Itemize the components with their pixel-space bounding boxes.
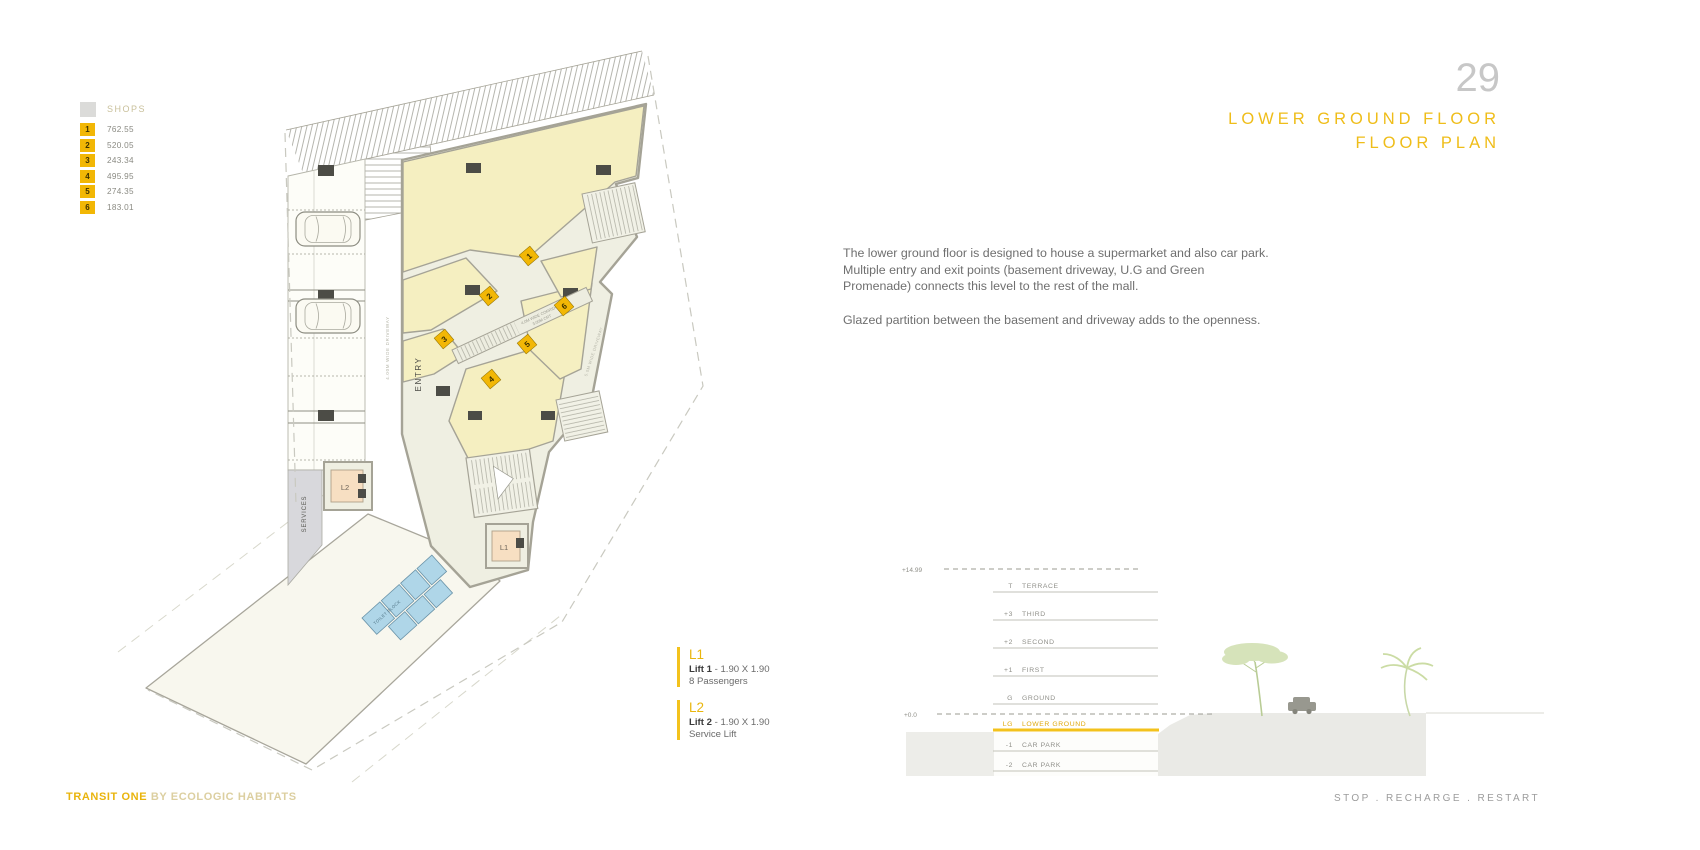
floor-code: +2: [1004, 639, 1013, 646]
floor-name-lower-ground: LOWER GROUND: [1022, 721, 1086, 728]
lift-1-name: Lift 1: [689, 664, 712, 675]
shop-area-value: 183.01: [107, 203, 134, 212]
underground-rows-bg: [994, 732, 1158, 776]
presentation-slide: SERVICES 4.0M WIDE CORRIDOR: [0, 0, 1700, 850]
legend-item: 1 762.55: [80, 123, 146, 136]
parked-car: [296, 299, 360, 333]
shop-number-badge: 1: [80, 123, 95, 136]
description-para1: The lower ground floor is designed to ho…: [843, 245, 1275, 295]
entry-label: ENTRY: [414, 357, 423, 392]
floor-code: G: [1007, 695, 1013, 702]
brand-byline: BY ECOLOGIC HABITATS: [151, 791, 297, 803]
shop-area-value: 243.34: [107, 156, 134, 165]
column: [318, 165, 334, 176]
legend-item: 6 183.01: [80, 201, 146, 214]
lift-legend: L1 Lift 1 - 1.90 X 1.90 8 Passengers L2 …: [677, 647, 770, 740]
lift-2-size: - 1.90 X 1.90: [715, 717, 770, 728]
lift-2-id: L2: [689, 700, 770, 715]
underground-mass-left: [906, 732, 994, 776]
title-block: 29 LOWER GROUND FLOOR FLOOR PLAN: [1228, 58, 1500, 156]
legend-item: 5 274.35: [80, 185, 146, 198]
shop-number-badge: 6: [80, 201, 95, 214]
floor-name: FIRST: [1022, 667, 1045, 674]
shop-number-badge: 3: [80, 154, 95, 167]
lift-2-box: L2: [324, 462, 372, 510]
lift-2-info: L2 Lift 2 - 1.90 X 1.90 Service Lift: [677, 700, 770, 740]
floor-code: T: [1008, 583, 1013, 590]
parked-car: [296, 212, 360, 246]
stair-core: [466, 449, 538, 517]
floor-name: GROUND: [1022, 695, 1056, 702]
shop-number-badge: 5: [80, 185, 95, 198]
stair-east: [556, 391, 608, 441]
legend-swatch: [80, 102, 96, 117]
building-section-diagram: +14.99 T TERRACE +3 THIRD +2 SECOND +1 F…: [890, 550, 1570, 800]
terrain-profile: [1158, 713, 1426, 776]
page-number: 29: [1228, 58, 1500, 98]
car-park-strip: [288, 159, 365, 470]
shop-number-badge: 4: [80, 170, 95, 183]
section-car: [1288, 697, 1316, 714]
lift-2-detail: Service Lift: [689, 729, 770, 740]
floor-code: +1: [1004, 667, 1013, 674]
brand-footer: TRANSIT ONE BY ECOLOGIC HABITATS: [66, 791, 297, 803]
lift-1-detail: 8 Passengers: [689, 676, 770, 687]
page-title-line1: LOWER GROUND FLOOR: [1228, 108, 1500, 132]
lift-1-id: L1: [689, 647, 770, 662]
tree-broad: [1222, 643, 1288, 716]
floor-code-lower-ground: LG: [1003, 721, 1013, 728]
page-title-line2: FLOOR PLAN: [1228, 132, 1500, 156]
stair-northeast: [582, 183, 645, 243]
legend-item: 4 495.95: [80, 170, 146, 183]
shop-area-value: 520.05: [107, 141, 134, 150]
brand-name: TRANSIT ONE: [66, 791, 147, 803]
level-zero-label: +0.0: [904, 712, 917, 719]
shop-area-value: 495.95: [107, 172, 134, 181]
level-top-label: +14.99: [902, 567, 922, 574]
floor-name: SECOND: [1022, 639, 1055, 646]
driveway-left-label: 4.00M WIDE DRIVEWAY: [385, 316, 390, 380]
floor-name: TERRACE: [1022, 583, 1059, 590]
tree-palm: [1381, 648, 1433, 716]
legend-title: SHOPS: [107, 104, 146, 114]
floor-code: -2: [1006, 762, 1013, 769]
legend-item: 2 520.05: [80, 139, 146, 152]
lift-1-box: L1: [486, 524, 528, 568]
legend-item: 3 243.34: [80, 154, 146, 167]
column: [318, 410, 334, 421]
lift-2-label: L2: [341, 483, 349, 492]
shop-area-value: 762.55: [107, 125, 134, 134]
lift-2-name: Lift 2: [689, 717, 712, 728]
floor-code: +3: [1004, 611, 1013, 618]
floor-code: -1: [1006, 742, 1013, 749]
tagline-footer: STOP . RECHARGE . RESTART: [1334, 793, 1540, 804]
floor-name: CAR PARK: [1022, 762, 1061, 769]
shops-legend: SHOPS 1 762.55 2 520.05 3 243.34 4 495.9…: [80, 101, 146, 217]
shop-area-value: 274.35: [107, 187, 134, 196]
description-text: The lower ground floor is designed to ho…: [843, 245, 1275, 328]
floor-name: THIRD: [1022, 611, 1046, 618]
description-para2: Glazed partition between the basement an…: [843, 312, 1275, 329]
shop-number-badge: 2: [80, 139, 95, 152]
lift-1-info: L1 Lift 1 - 1.90 X 1.90 8 Passengers: [677, 647, 770, 687]
lift-1-label: L1: [500, 543, 508, 552]
lift-1-size: - 1.90 X 1.90: [715, 664, 770, 675]
services-label: SERVICES: [302, 496, 308, 533]
floor-name: CAR PARK: [1022, 742, 1061, 749]
